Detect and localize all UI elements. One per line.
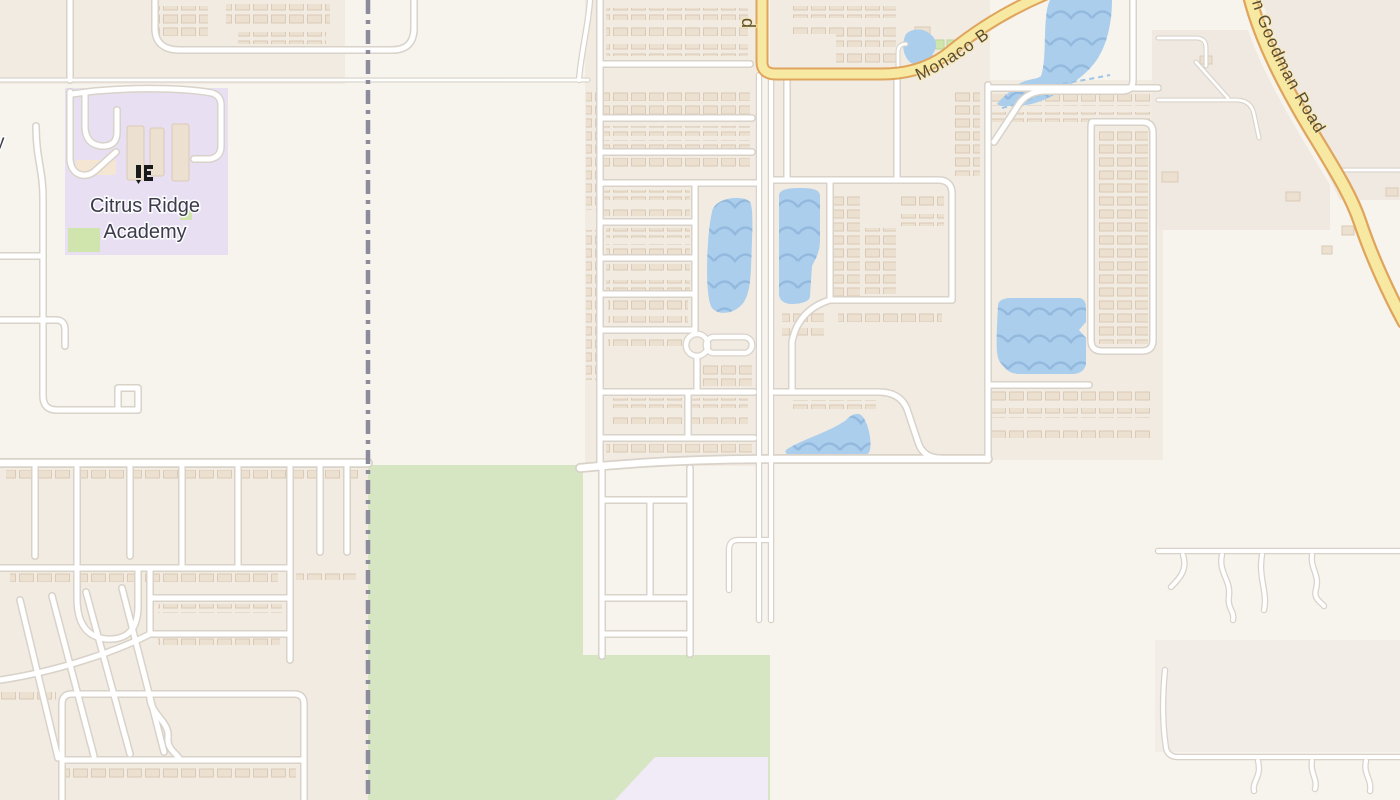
partial-label-y: y <box>0 132 5 153</box>
school-name-label-line2[interactable]: Academy <box>103 221 186 243</box>
school-name-label-line1[interactable]: Citrus Ridge <box>90 195 200 217</box>
map-canvas: Citrus Ridge Academy Monaco B n Goodman … <box>0 0 1400 800</box>
partial-road-label-p: p <box>736 18 756 28</box>
map-viewport[interactable]: Citrus Ridge Academy Monaco B n Goodman … <box>0 0 1400 800</box>
